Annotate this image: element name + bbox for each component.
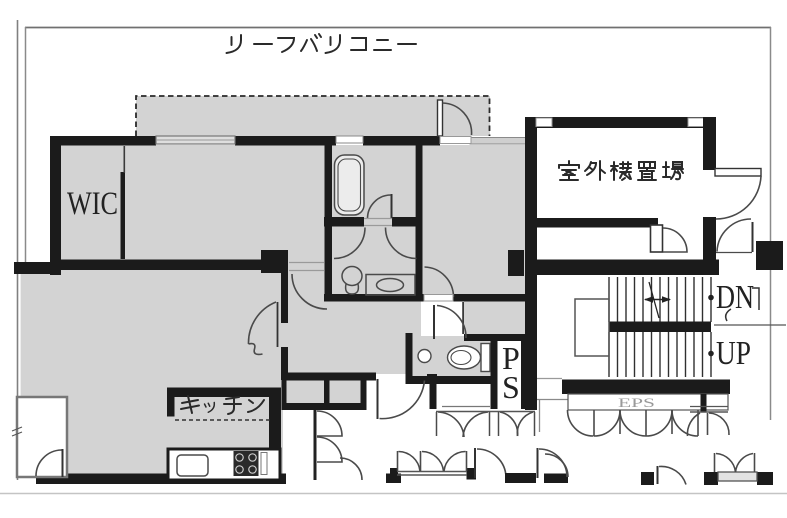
svg-text:WIC: WIC — [67, 186, 118, 222]
svg-text:DN: DN — [716, 279, 754, 316]
svg-text:UP: UP — [716, 335, 751, 372]
svg-text:S: S — [502, 369, 520, 405]
svg-text:EPS: EPS — [618, 395, 655, 410]
